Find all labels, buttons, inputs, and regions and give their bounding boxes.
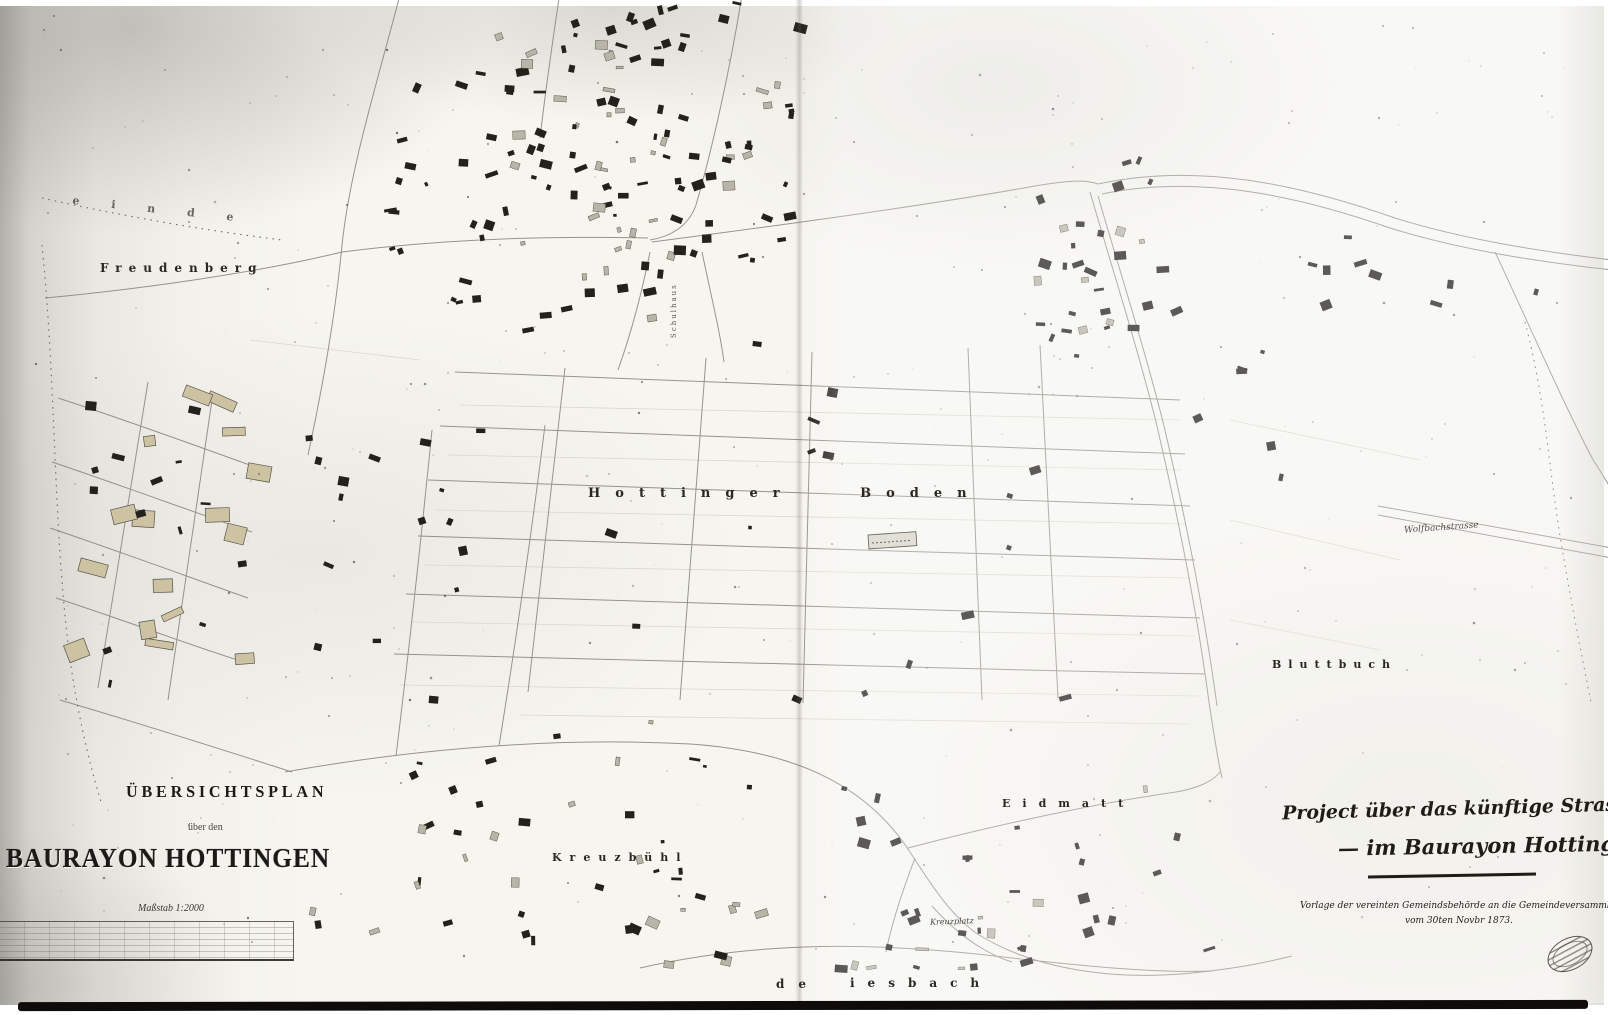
- label-hottinger-boden: Hottinger Boden: [588, 486, 982, 501]
- label-freudenberg: Freudenberg: [100, 261, 263, 275]
- scanned-map-page: Freudenberg Hottinger Boden Kreuzbühl Ei…: [0, 0, 1608, 1015]
- scale-label: Maßstab 1:2000: [138, 903, 204, 914]
- project-title-line2: — im Baurayon Hottingen: [1338, 830, 1608, 860]
- label-gemeinde-riesbach-de: de: [776, 977, 820, 991]
- plan-heading: ÜBERSICHTSPLAN: [126, 782, 327, 802]
- plan-main-title: BAURAYON HOTTINGEN: [6, 843, 330, 874]
- project-note-line4: vom 30ten Novbr 1873.: [1405, 916, 1513, 926]
- paper-fold-line: [795, 0, 803, 1002]
- plan-subheading: über den: [188, 822, 223, 833]
- label-kreuzplatz: Kreuzplatz: [930, 916, 974, 927]
- label-eidmatt: Eidmatt: [1002, 797, 1135, 810]
- project-note-line3: Vorlage der vereinten Gemeindsbehörde an…: [1300, 901, 1608, 911]
- label-kreuzbuehl: Kreuzbühl: [552, 851, 688, 864]
- label-bluttbuch: Bluttbuch: [1272, 658, 1397, 671]
- label-schulhaus: Schulhaus: [670, 283, 678, 338]
- scale-bar: [0, 921, 294, 961]
- label-gemeinde-riesbach: iesbach: [850, 976, 992, 990]
- parcel-label-box: [868, 532, 917, 549]
